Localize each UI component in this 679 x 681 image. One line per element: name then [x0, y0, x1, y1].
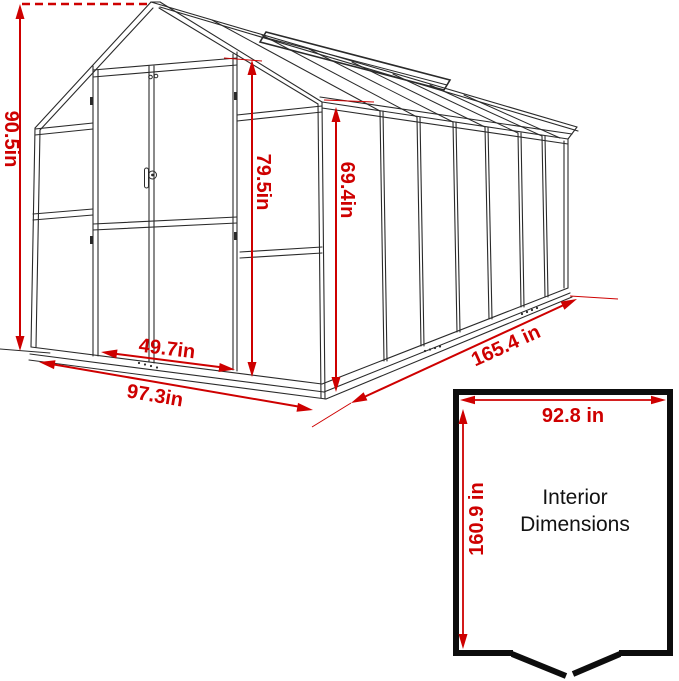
interior-title-line2: Dimensions: [520, 511, 630, 538]
side-wall-height-label: 69.4in: [337, 162, 357, 219]
greenhouse-dimension-diagram: 90.5in 79.5in 69.4in 49.7in 97.3in 165.4…: [0, 0, 679, 681]
door-handle: [145, 74, 158, 188]
side-wall-height-dimension: [324, 100, 374, 392]
overall-height-dimension: [16, 4, 25, 351]
drawing-canvas: [0, 0, 679, 681]
door-height-label: 79.5in: [253, 154, 273, 211]
door-hinges: [90, 92, 238, 244]
interior-depth-label: 160.9 in: [467, 482, 487, 555]
interior-dimensions-title: Interior Dimensions: [520, 484, 630, 538]
interior-title-line1: Interior: [520, 484, 630, 511]
interior-width-dimension: [460, 396, 666, 404]
interior-width-label: 92.8 in: [542, 406, 604, 426]
overall-height-label: 90.5in: [1, 111, 21, 168]
